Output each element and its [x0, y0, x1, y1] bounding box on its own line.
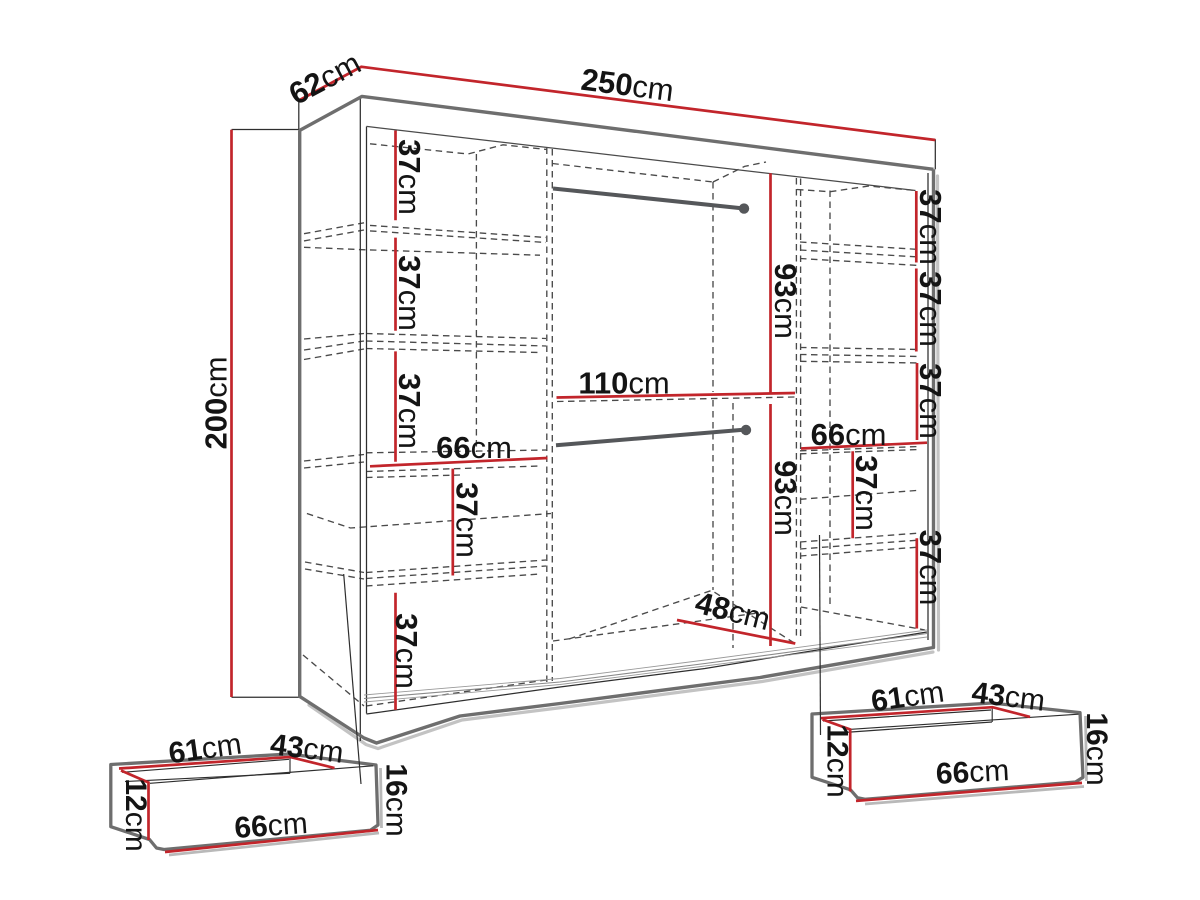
svg-text:66cm: 66cm	[811, 417, 887, 452]
svg-text:37cm: 37cm	[849, 455, 884, 531]
svg-text:16cm: 16cm	[1080, 712, 1113, 785]
svg-text:37cm: 37cm	[392, 373, 427, 449]
svg-text:37cm: 37cm	[913, 189, 948, 265]
svg-text:37cm: 37cm	[389, 613, 424, 689]
svg-text:66cm: 66cm	[233, 807, 308, 845]
svg-text:37cm: 37cm	[913, 363, 948, 439]
svg-text:12cm: 12cm	[119, 778, 152, 851]
svg-text:200cm: 200cm	[199, 356, 234, 449]
svg-text:66cm: 66cm	[436, 430, 512, 465]
svg-text:37cm: 37cm	[913, 530, 948, 606]
svg-text:37cm: 37cm	[392, 255, 427, 331]
svg-text:66cm: 66cm	[935, 754, 1010, 791]
svg-text:16cm: 16cm	[380, 763, 413, 836]
svg-text:37cm: 37cm	[913, 271, 948, 347]
svg-text:93cm: 93cm	[768, 460, 803, 536]
svg-text:37cm: 37cm	[392, 139, 427, 215]
svg-text:110cm: 110cm	[578, 366, 669, 401]
svg-text:37cm: 37cm	[450, 482, 485, 558]
svg-text:12cm: 12cm	[821, 724, 854, 797]
svg-text:93cm: 93cm	[768, 263, 803, 339]
